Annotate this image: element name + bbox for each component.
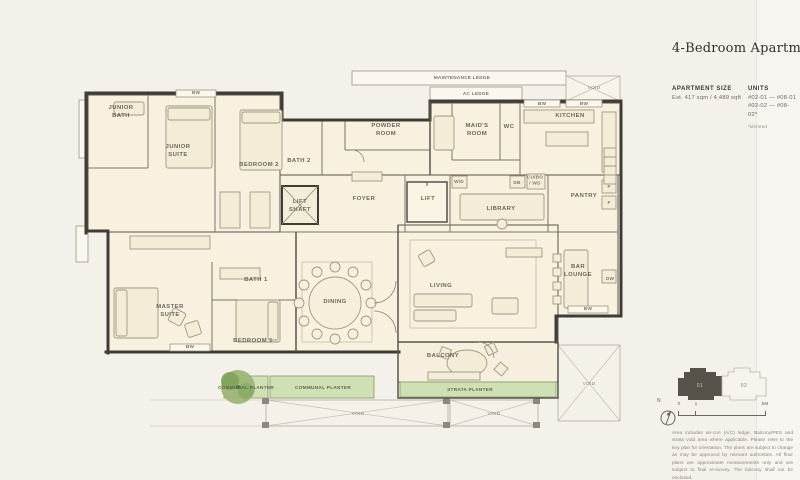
scale-bar: 0 1 5M xyxy=(678,402,770,420)
page-title: 4-Bedroom Apartment xyxy=(672,41,797,57)
foyer-console xyxy=(352,172,382,181)
wardrobe xyxy=(220,192,240,228)
tree-icon xyxy=(221,370,255,404)
bar-stool xyxy=(553,296,561,304)
lift xyxy=(407,182,447,222)
oven xyxy=(602,270,616,283)
sofa xyxy=(414,310,456,321)
kitchen-island xyxy=(546,132,588,146)
key-plan-unit-02-label: 02 xyxy=(741,383,748,389)
units-note: *Mirrored xyxy=(748,124,798,130)
lift-shaft xyxy=(282,186,318,224)
units-range-2: #02-02 — #08-02* xyxy=(748,102,798,119)
db-box xyxy=(510,176,525,188)
bar-stool xyxy=(553,268,561,276)
kitchen-counter xyxy=(524,110,594,123)
apartment-size-block: APARTMENT SIZE Est. 417 sqm / 4,489 sqft xyxy=(672,86,746,102)
units-range-1: #02-01 — #08-01 xyxy=(748,94,798,103)
cu-wd-box xyxy=(527,174,545,189)
void-top xyxy=(566,76,620,101)
bar-counter xyxy=(564,250,588,308)
apartment-size-label: APARTMENT SIZE xyxy=(672,86,746,94)
bathtub xyxy=(114,102,144,115)
library-desk xyxy=(460,194,544,220)
brochure-page: JUNIOR BATHJUNIOR SUITEBEDROOM 2BATH 2PO… xyxy=(0,0,800,480)
master-wardrobe xyxy=(130,236,210,249)
balcony-bench xyxy=(428,372,480,380)
sofa xyxy=(414,294,472,307)
wardrobe xyxy=(250,192,270,228)
apartment-size-value: Est. 417 sqm / 4,489 sqft xyxy=(672,94,746,103)
disclaimer: Area includes air-con (A/C) ledge, Balco… xyxy=(672,430,793,480)
sideboard xyxy=(506,248,542,257)
bar-stool xyxy=(553,254,561,262)
units-block: UNITS #02-01 — #08-01 #02-02 — #08-02* *… xyxy=(748,86,798,130)
units-label: UNITS xyxy=(748,86,798,94)
key-plan-drawing: 01 02 xyxy=(676,366,768,404)
scale-tick-1: 1 xyxy=(695,402,698,407)
scale-tick-0: 0 xyxy=(678,402,681,407)
fridge xyxy=(602,196,616,209)
coffee-table xyxy=(492,298,518,314)
disclaimer-paragraph-1: Area includes air-con (A/C) ledge, Balco… xyxy=(672,430,793,480)
washer-dryer xyxy=(452,176,467,188)
key-plan-unit-01-label: 01 xyxy=(697,383,704,389)
bar-stool xyxy=(553,282,561,290)
scale-tick-5m: 5M xyxy=(762,402,769,407)
info-panel: 4-Bedroom Apartment APARTMENT SIZE Est. … xyxy=(672,0,794,480)
library-chair xyxy=(497,219,507,229)
maids-bed xyxy=(434,116,454,150)
bath1-vanity xyxy=(220,268,260,279)
